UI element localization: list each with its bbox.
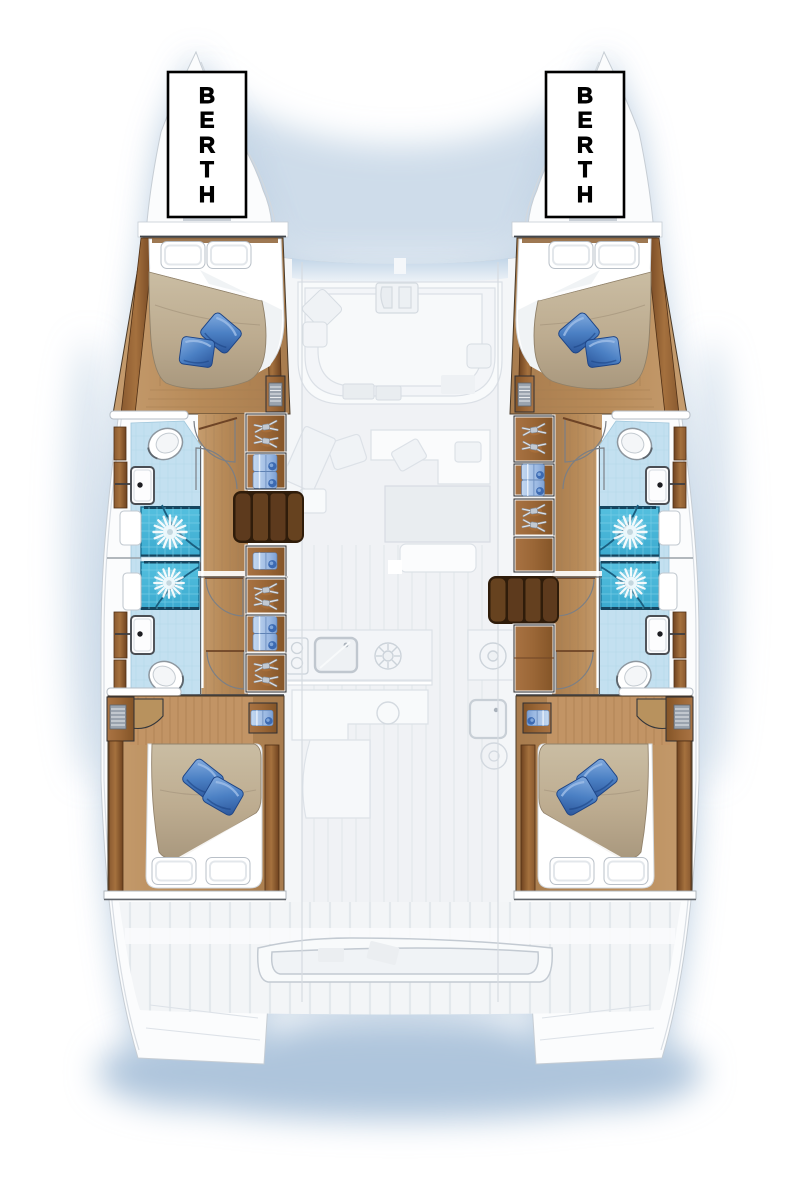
svg-text:BERTH: BERTH [577, 83, 593, 207]
svg-text:BERTH: BERTH [199, 83, 215, 207]
